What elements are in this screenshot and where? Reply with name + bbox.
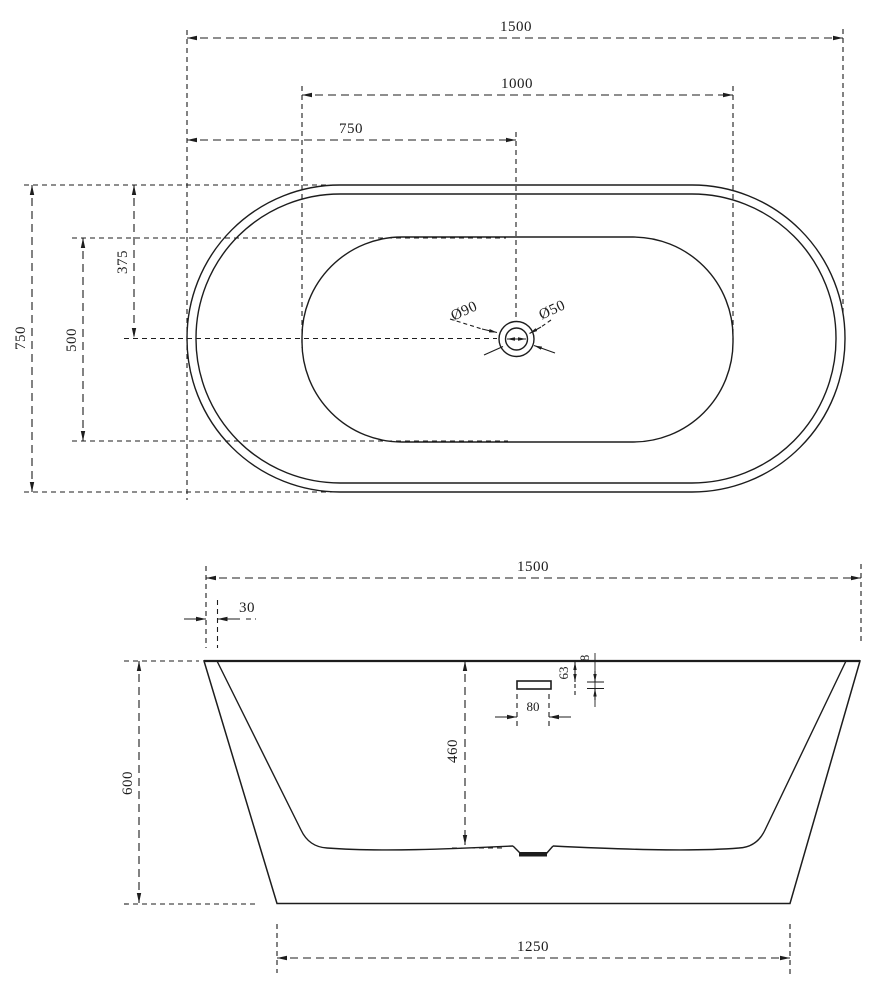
drawing-canvas: 1500 1000 750 750 500 375 Ø90 Ø50: [0, 0, 895, 1000]
leader-dia90-arrow: [482, 329, 497, 333]
dim-label-1250: 1250: [517, 939, 549, 955]
leader-dia50-tail: [484, 347, 503, 356]
dim-label-top-1500: 1500: [500, 19, 532, 35]
top-view-extension-lines: [24, 29, 843, 500]
dim-label-63: 63: [556, 667, 571, 680]
leader-dia90-tail: [534, 346, 555, 354]
dim-label-top-750v: 750: [13, 326, 29, 350]
tub-inner-wall-right: [739, 661, 846, 848]
top-view: 1500 1000 750 750 500 375 Ø90 Ø50: [13, 19, 845, 500]
dim-label-drain-90: Ø90: [449, 298, 481, 324]
dim-label-80: 80: [527, 699, 540, 714]
dim-label-460: 460: [445, 739, 461, 763]
dim-label-top-750h: 750: [339, 121, 363, 137]
dim-label-top-500: 500: [64, 328, 80, 352]
dim-label-drain-50: Ø50: [537, 297, 569, 323]
dim-label-top-375: 375: [115, 250, 131, 274]
side-view-dimension-lines: [139, 578, 861, 958]
tub-side-outline: [204, 661, 860, 904]
drawing-sheet: 1500 1000 750 750 500 375 Ø90 Ø50: [0, 0, 895, 1000]
dim-label-600: 600: [120, 771, 136, 795]
side-view: 1500 30 600 460 63 8 80 1250: [120, 559, 861, 976]
bottom-drain-bar: [519, 852, 547, 857]
side-view-extension-lines: [124, 564, 861, 976]
dim-label-top-1000: 1000: [501, 76, 533, 92]
top-view-dimension-lines: [32, 38, 843, 492]
dim-label-8: 8: [577, 655, 592, 662]
tub-inner-bottom-right: [553, 846, 739, 850]
tub-inner-bottom-left: [327, 846, 513, 850]
overflow-slot: [517, 681, 551, 689]
dim-label-side-1500: 1500: [517, 559, 549, 575]
dim-label-30: 30: [239, 600, 255, 616]
tub-inner-wall-left: [217, 661, 327, 848]
